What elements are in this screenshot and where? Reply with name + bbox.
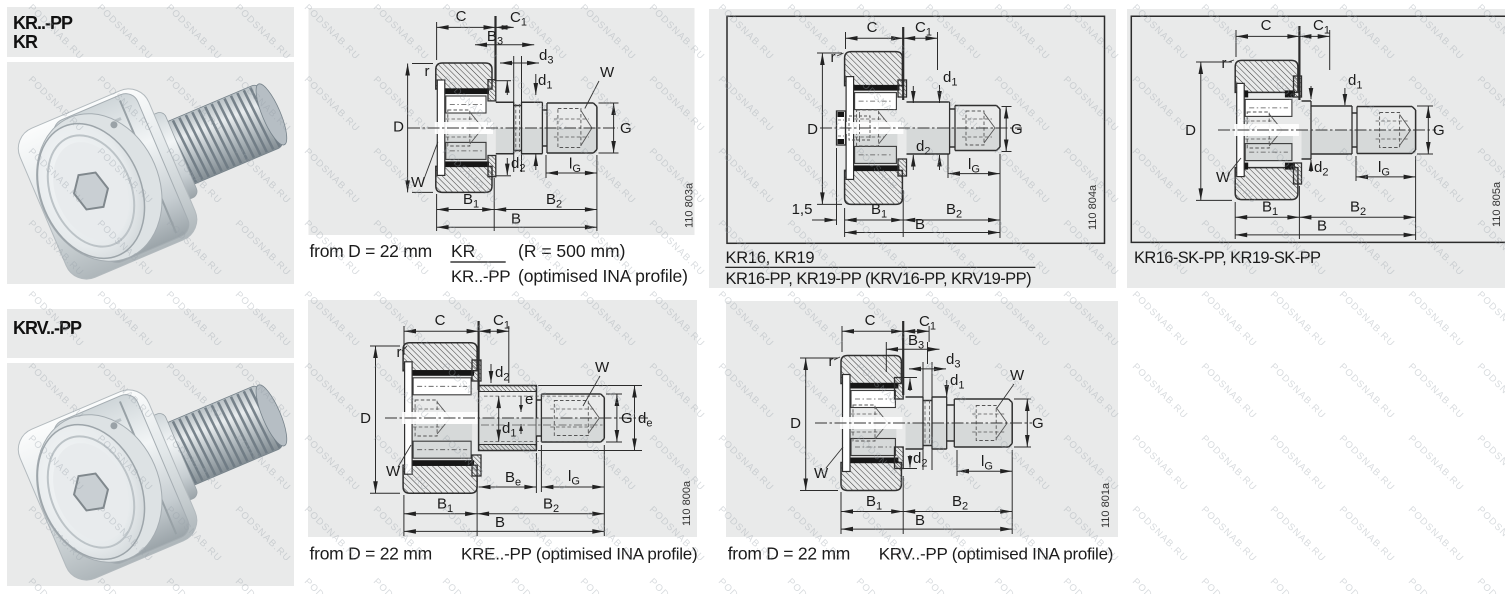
svg-text:PODSNAB.RU: PODSNAB.RU xyxy=(1268,576,1328,594)
svg-text:G: G xyxy=(1433,122,1445,139)
svg-text:PODSNAB.RU: PODSNAB.RU xyxy=(1406,361,1466,421)
svg-text:PODSNAB.RU: PODSNAB.RU xyxy=(647,576,707,594)
svg-text:r: r xyxy=(1222,55,1227,72)
svg-text:PODSNAB.RU: PODSNAB.RU xyxy=(785,576,845,594)
svg-text:D: D xyxy=(790,415,801,432)
svg-text:110 800a: 110 800a xyxy=(681,480,693,526)
svg-text:PODSNAB.RU: PODSNAB.RU xyxy=(1337,504,1397,564)
svg-text:PODSNAB.RU: PODSNAB.RU xyxy=(578,576,638,594)
svg-text:G: G xyxy=(1011,121,1023,138)
svg-text:PODSNAB.RU: PODSNAB.RU xyxy=(1130,576,1190,594)
svg-text:C: C xyxy=(1261,17,1272,34)
svg-text:r: r xyxy=(829,353,834,370)
svg-text:PODSNAB.RU: PODSNAB.RU xyxy=(440,576,500,594)
svg-text:PODSNAB.RU: PODSNAB.RU xyxy=(923,576,983,594)
svg-text:PODSNAB.RU: PODSNAB.RU xyxy=(1406,504,1466,564)
svg-text:B: B xyxy=(495,514,505,531)
svg-text:PODSNAB.RU: PODSNAB.RU xyxy=(1130,433,1190,493)
svg-text:B: B xyxy=(915,512,925,529)
svg-text:PODSNAB.RU: PODSNAB.RU xyxy=(1130,289,1190,349)
svg-text:PODSNAB.RU: PODSNAB.RU xyxy=(1268,433,1328,493)
svg-text:KR: KR xyxy=(13,32,38,52)
svg-text:PODSNAB.RU: PODSNAB.RU xyxy=(1406,576,1466,594)
svg-text:PODSNAB.RU: PODSNAB.RU xyxy=(1199,289,1259,349)
svg-text:PODSNAB.RU: PODSNAB.RU xyxy=(1130,504,1190,564)
svg-text:r: r xyxy=(425,63,430,80)
svg-text:KR..-PP: KR..-PP xyxy=(451,267,510,286)
svg-text:PODSNAB.RU: PODSNAB.RU xyxy=(1061,576,1121,594)
svg-text:PODSNAB.RU: PODSNAB.RU xyxy=(1475,289,1505,349)
svg-text:PODSNAB.RU: PODSNAB.RU xyxy=(854,576,914,594)
svg-text:PODSNAB.RU: PODSNAB.RU xyxy=(1268,289,1328,349)
svg-text:PODSNAB.RU: PODSNAB.RU xyxy=(1199,361,1259,421)
svg-text:e: e xyxy=(525,391,533,408)
svg-text:W: W xyxy=(600,64,615,81)
svg-text:D: D xyxy=(393,119,404,136)
svg-text:(optimised INA profile): (optimised INA profile) xyxy=(518,266,688,286)
svg-text:PODSNAB.RU: PODSNAB.RU xyxy=(1406,289,1466,349)
svg-text:PODSNAB.RU: PODSNAB.RU xyxy=(1475,576,1505,594)
svg-text:PODSNAB.RU: PODSNAB.RU xyxy=(992,576,1052,594)
svg-text:1,5: 1,5 xyxy=(792,201,813,218)
svg-text:D: D xyxy=(807,121,818,138)
svg-text:r: r xyxy=(397,344,402,361)
svg-text:PODSNAB.RU: PODSNAB.RU xyxy=(1268,504,1328,564)
svg-text:PODSNAB.RU: PODSNAB.RU xyxy=(1337,433,1397,493)
svg-text:PODSNAB.RU: PODSNAB.RU xyxy=(1337,289,1397,349)
svg-text:PODSNAB.RU: PODSNAB.RU xyxy=(1199,576,1259,594)
svg-text:PODSNAB.RU: PODSNAB.RU xyxy=(1199,433,1259,493)
svg-text:PODSNAB.RU: PODSNAB.RU xyxy=(1475,433,1505,493)
svg-text:110 805a: 110 805a xyxy=(1491,181,1503,227)
svg-text:PODSNAB.RU: PODSNAB.RU xyxy=(1337,361,1397,421)
svg-text:PODSNAB.RU: PODSNAB.RU xyxy=(1475,504,1505,564)
svg-text:PODSNAB.RU: PODSNAB.RU xyxy=(1406,433,1466,493)
svg-text:PODSNAB.RU: PODSNAB.RU xyxy=(1337,576,1397,594)
svg-text:PODSNAB.RU: PODSNAB.RU xyxy=(1199,504,1259,564)
svg-text:PODSNAB.RU: PODSNAB.RU xyxy=(716,576,776,594)
svg-text:110 804a: 110 804a xyxy=(1087,184,1099,230)
svg-text:PODSNAB.RU: PODSNAB.RU xyxy=(371,576,431,594)
svg-text:C: C xyxy=(435,312,446,329)
svg-text:PODSNAB.RU: PODSNAB.RU xyxy=(1268,361,1328,421)
svg-text:PODSNAB.RU: PODSNAB.RU xyxy=(1130,361,1190,421)
svg-text:B: B xyxy=(1317,218,1327,235)
svg-text:PODSNAB.RU: PODSNAB.RU xyxy=(1475,361,1505,421)
svg-text:PODSNAB.RU: PODSNAB.RU xyxy=(509,576,569,594)
svg-text:PODSNAB.RU: PODSNAB.RU xyxy=(302,576,362,594)
svg-text:KRV..-PP (optimised INA profil: KRV..-PP (optimised INA profile) xyxy=(879,545,1114,564)
